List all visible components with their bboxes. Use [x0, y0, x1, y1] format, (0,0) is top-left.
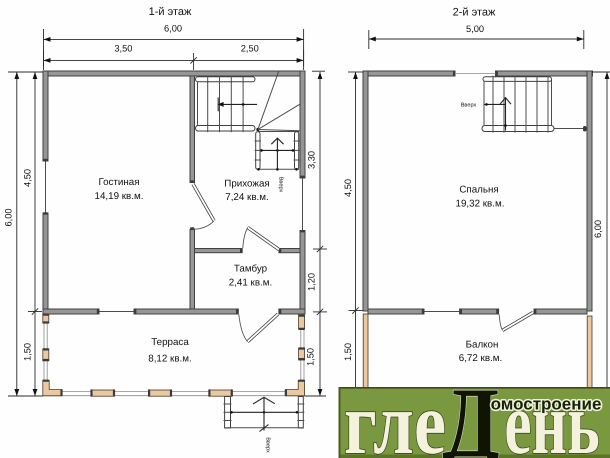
svg-text:Вверх: Вверх [277, 177, 283, 193]
svg-text:Прихожая: Прихожая [224, 179, 269, 190]
svg-text:1-й этаж: 1-й этаж [149, 6, 192, 18]
svg-text:Вверх: Вверх [264, 437, 270, 453]
svg-text:1,50: 1,50 [306, 348, 316, 366]
svg-text:1,20: 1,20 [307, 273, 317, 291]
svg-text:6,72 кв.м.: 6,72 кв.м. [459, 353, 502, 364]
svg-text:1,50: 1,50 [343, 343, 353, 361]
svg-text:омостроение: омостроение [491, 395, 602, 414]
svg-text:Терраса: Терраса [151, 337, 189, 348]
svg-text:3,50: 3,50 [114, 44, 132, 54]
svg-text:гле: гле [344, 374, 446, 458]
svg-text:Вверх: Вверх [461, 102, 477, 108]
svg-text:7,24 кв.м.: 7,24 кв.м. [225, 192, 268, 203]
svg-text:Спальня: Спальня [459, 184, 498, 195]
svg-text:6,00: 6,00 [593, 220, 603, 238]
svg-text:2-й этаж: 2-й этаж [453, 7, 496, 19]
svg-text:6,00: 6,00 [4, 208, 14, 226]
svg-text:4,50: 4,50 [23, 169, 33, 187]
svg-text:2,41 кв.м.: 2,41 кв.м. [229, 278, 272, 289]
svg-text:ень: ень [504, 374, 599, 458]
svg-text:19,32 кв.м.: 19,32 кв.м. [456, 199, 505, 210]
svg-text:Балкон: Балкон [466, 340, 499, 351]
svg-text:Тамбур: Тамбур [234, 264, 268, 275]
svg-text:8,12 кв.м.: 8,12 кв.м. [148, 354, 191, 365]
svg-text:1,50: 1,50 [23, 343, 33, 361]
svg-text:5,00: 5,00 [466, 24, 484, 34]
svg-text:Гостиная: Гостиная [98, 177, 139, 188]
svg-text:14,19 кв.м.: 14,19 кв.м. [95, 191, 144, 202]
svg-text:6,00: 6,00 [164, 24, 182, 34]
svg-text:4,50: 4,50 [343, 179, 353, 197]
svg-text:3,30: 3,30 [307, 151, 317, 169]
svg-text:2,50: 2,50 [241, 44, 259, 54]
